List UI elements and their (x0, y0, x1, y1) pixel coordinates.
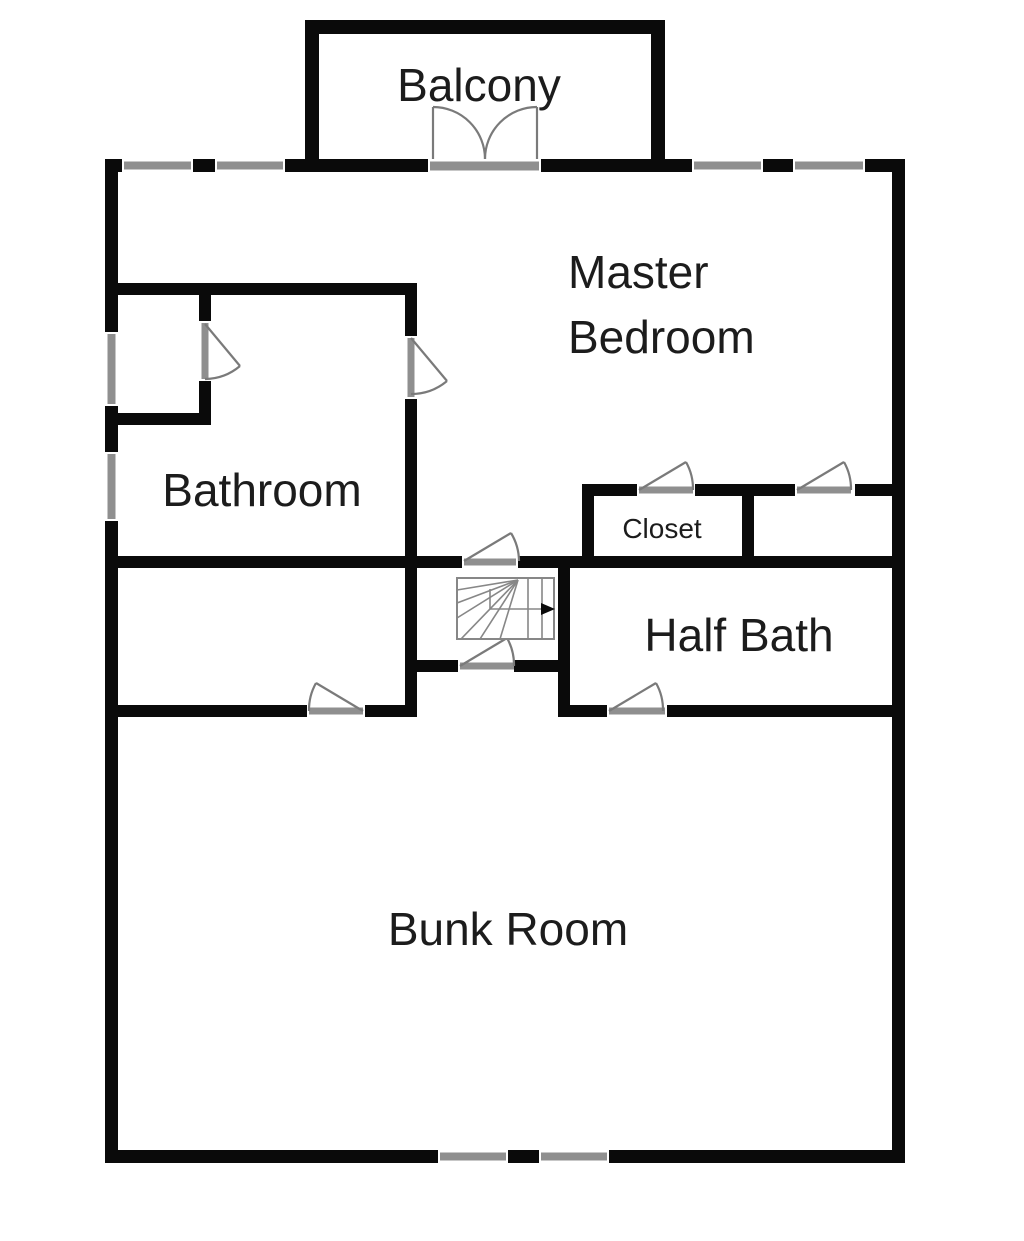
stair-top-door-threshold (464, 559, 516, 566)
stairs (457, 578, 555, 639)
closet-right-door-threshold (797, 487, 851, 494)
wall-segment (609, 1150, 905, 1163)
bathroom-door-leaf (411, 338, 447, 381)
wall-segment (405, 399, 417, 568)
exterior-walls (105, 159, 905, 1163)
wall-segment (405, 568, 417, 717)
stair-bottom-door-threshold (460, 663, 514, 670)
wall-segment (105, 1150, 438, 1163)
half-bath-door-threshold (609, 708, 665, 715)
half-bath-door-arc (656, 683, 663, 711)
wall-segment (892, 159, 905, 1163)
floor-plan-svg: Balcony Master Bedroom Bathroom Closet H… (0, 0, 1024, 1241)
window (124, 162, 191, 170)
wall-segment (105, 159, 118, 332)
room-labels: Balcony Master Bedroom Bathroom Closet H… (162, 59, 833, 955)
closet-right-door-arc (844, 462, 851, 490)
wall-segment (193, 159, 215, 172)
closet-left-door-arc (686, 462, 693, 490)
room-door-arc (309, 683, 316, 711)
balcony-label: Balcony (397, 59, 561, 111)
wall-segment (365, 705, 417, 717)
half-bath-door-leaf (609, 683, 656, 711)
bathroom-door-threshold (408, 338, 415, 397)
floor-plan-page: Balcony Master Bedroom Bathroom Closet H… (0, 0, 1024, 1241)
wall-segment (651, 20, 665, 159)
window (217, 162, 283, 170)
stair-top-door-leaf (464, 533, 511, 561)
water-closet-door-arc (205, 366, 240, 379)
room-door-leaf (316, 683, 363, 711)
balcony-door-right-arc (485, 107, 537, 159)
closet-left-door-leaf (639, 462, 686, 490)
window (541, 1153, 607, 1161)
master-bedroom-label-line2: Bedroom (568, 311, 755, 363)
wall-segment (742, 484, 754, 568)
wall-segment (582, 484, 594, 568)
balcony-door-threshold (430, 162, 539, 171)
wall-segment (405, 295, 417, 336)
wall-segment (763, 159, 793, 172)
wall-segment (305, 20, 319, 159)
wall-segment (558, 568, 570, 717)
closet-right-door-leaf (797, 462, 844, 490)
balcony-door-left-arc (433, 107, 485, 159)
wall-segment (558, 705, 607, 717)
wall-segment (105, 556, 462, 568)
wall-segment (105, 283, 417, 295)
wall-segment (305, 20, 665, 34)
wall-segment (667, 705, 905, 717)
wall-segment (285, 159, 428, 172)
window (694, 162, 761, 170)
water-closet-door-threshold (202, 323, 209, 379)
window (108, 454, 116, 519)
wall-segment (199, 295, 211, 321)
wall-segment (508, 1150, 539, 1163)
master-bedroom-label-line1: Master (568, 246, 709, 298)
closet-label: Closet (622, 513, 702, 544)
window (108, 334, 116, 404)
wall-segment (105, 705, 307, 717)
stair-bottom-door-leaf (460, 638, 507, 666)
wall-segment (105, 521, 118, 1163)
bathroom-door-arc (411, 381, 447, 394)
half-bath-label: Half Bath (644, 609, 833, 661)
wall-segment (514, 660, 558, 672)
wall-segment (105, 413, 211, 425)
wall-segment (541, 159, 692, 172)
stair-top-door-arc (511, 533, 519, 561)
stair-bottom-door-arc (507, 638, 514, 666)
wall-segment (518, 556, 905, 568)
wall-segment (105, 406, 118, 452)
window (795, 162, 863, 170)
room-door-threshold (309, 708, 363, 715)
bunk-room-label: Bunk Room (388, 903, 628, 955)
bathroom-label: Bathroom (162, 464, 361, 516)
window (440, 1153, 506, 1161)
wall-segment (855, 484, 905, 496)
closet-left-door-threshold (639, 487, 693, 494)
wall-segment (417, 660, 458, 672)
water-closet-door-leaf (205, 324, 240, 366)
